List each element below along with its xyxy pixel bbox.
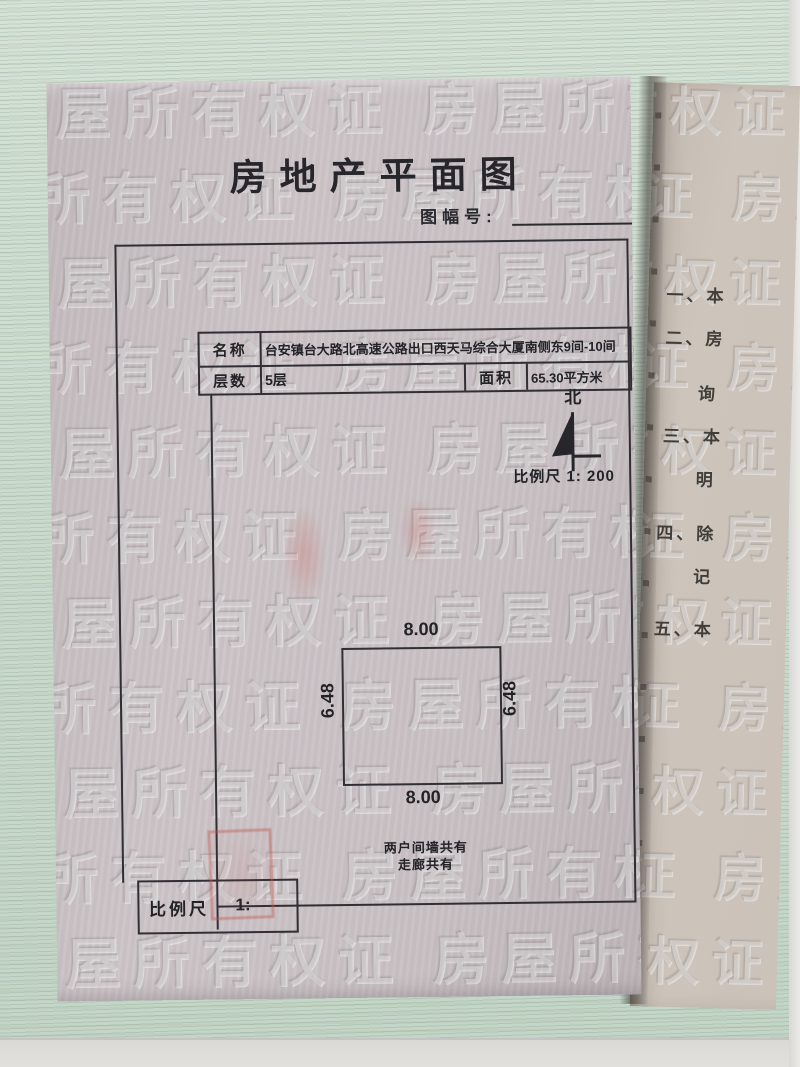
dimension-right: 6.48 (499, 670, 521, 726)
shared-note-line1: 两户间墙共有 (342, 838, 510, 857)
floors-value: 5层 (262, 364, 466, 392)
dimension-bottom: 8.00 (343, 786, 503, 809)
shared-ownership-note: 两户间墙共有 走廊共有 (342, 838, 510, 874)
scale-note: 比例尺 1: 200 (513, 465, 615, 487)
surface-bottom-edge (0, 1038, 800, 1067)
right-page-note-fragment: 三、本 (663, 422, 724, 449)
name-label: 名称 (199, 333, 261, 366)
red-stamp-smudge (285, 510, 324, 598)
right-page-note-fragment: 五、本 (654, 614, 715, 641)
table-row: 名称 台安镇台大路北高速公路出口西天马综合大厦南侧东9间-10间 (199, 328, 629, 367)
name-value: 台安镇台大路北高速公路出口西天马综合大厦南侧东9间-10间 (261, 328, 629, 364)
right-page-note-fragment: 询 (698, 380, 719, 406)
red-stamp-smudge (402, 501, 435, 563)
right-page-note-fragment: 明 (695, 465, 716, 491)
red-stamp-outline (207, 828, 274, 920)
right-page-note-fragment: 记 (693, 562, 714, 588)
watermark-row: 房屋所有权证 房屋所有权证 房屋所有权证 房屋所有权证 房屋所有权证 (630, 912, 800, 1010)
right-page-note-fragment: 二、房 (665, 324, 726, 351)
compass: 北 (542, 383, 613, 478)
right-page-note-fragment: 四、除 (656, 518, 717, 545)
dimension-top: 8.00 (341, 618, 501, 641)
photo-frame: 房屋所有权证 房屋所有权证 房屋所有权证 房屋所有权证 房屋所有权证 房屋所有权… (0, 0, 800, 1067)
floor-plan-page: 房屋所有权证 房屋所有权证 房屋所有权证 房屋所有权证 房屋所有权证 房屋所有权… (46, 76, 641, 1001)
dimension-left: 6.48 (317, 673, 339, 729)
floors-label: 层数 (200, 367, 262, 394)
watermark-row: 房屋所有权证 房屋所有权证 房屋所有权证 房屋所有权证 房屋所有权证 (46, 76, 641, 151)
floor-plan-outline (341, 646, 503, 786)
area-label: 面积 (466, 364, 528, 391)
right-page-note-fragment: 一、本 (666, 281, 727, 308)
shared-note-line2: 走廊共有 (342, 855, 510, 874)
sheet-number-label: 图幅号: (420, 202, 497, 228)
north-arrow-icon (542, 410, 603, 473)
north-label: 北 (564, 383, 612, 409)
page-title: 房地产平面图 (87, 142, 641, 203)
scale-box-label: 比例尺 (139, 882, 219, 933)
